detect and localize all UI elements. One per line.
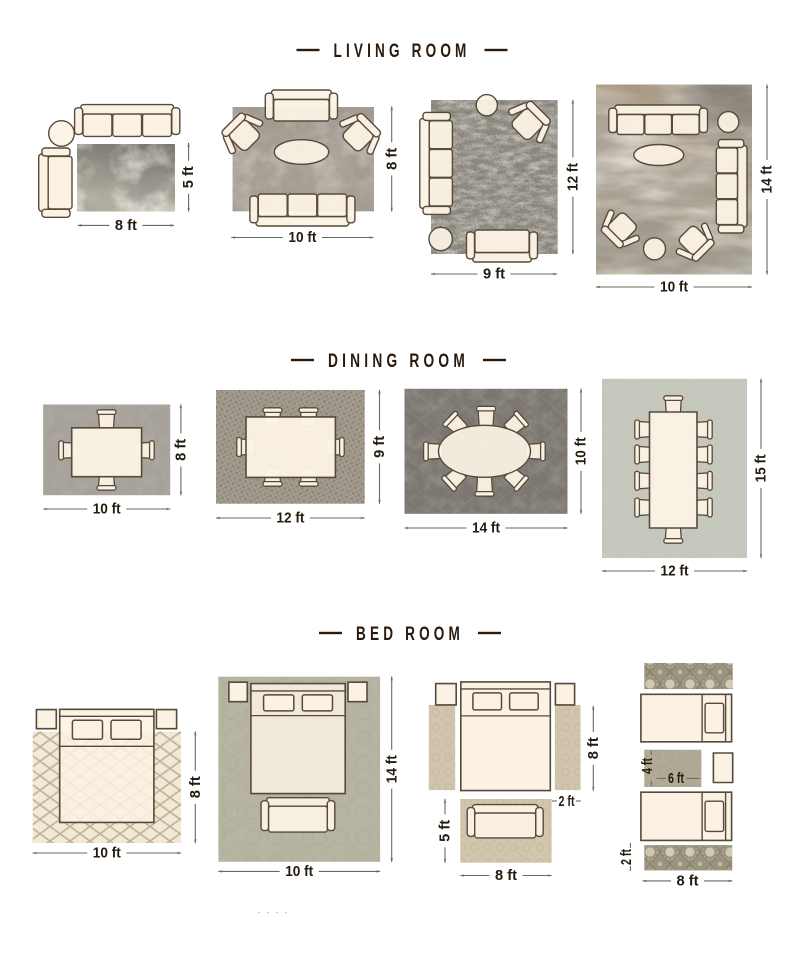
svg-text:2 ft: 2 ft — [559, 794, 575, 810]
svg-text:4 ft: 4 ft — [640, 758, 656, 774]
svg-text:12 ft: 12 ft — [566, 163, 582, 191]
svg-text:BED ROOM: BED ROOM — [356, 623, 464, 645]
svg-text:12 ft: 12 ft — [276, 511, 304, 527]
svg-text:8 ft: 8 ft — [677, 874, 699, 890]
svg-text:14 ft: 14 ft — [472, 521, 500, 537]
svg-text:8 ft: 8 ft — [495, 868, 517, 884]
svg-text:10 ft: 10 ft — [285, 864, 313, 880]
svg-text:15 ft: 15 ft — [754, 454, 770, 482]
svg-text:LIVING ROOM: LIVING ROOM — [334, 40, 471, 62]
svg-text:14 ft: 14 ft — [760, 165, 776, 193]
svg-text:5 ft: 5 ft — [438, 820, 454, 842]
svg-text:8 ft: 8 ft — [586, 737, 602, 759]
svg-text:8 ft: 8 ft — [174, 439, 190, 461]
svg-text:14 ft: 14 ft — [384, 755, 400, 783]
svg-text:5 ft: 5 ft — [181, 166, 197, 188]
svg-text:10 ft: 10 ft — [574, 437, 590, 465]
svg-text:10 ft: 10 ft — [660, 280, 688, 296]
svg-text:9 ft: 9 ft — [372, 436, 388, 458]
svg-text:12 ft: 12 ft — [661, 564, 689, 580]
svg-text:10 ft: 10 ft — [288, 230, 316, 246]
svg-text:9 ft: 9 ft — [483, 267, 505, 283]
svg-text:8 ft: 8 ft — [188, 776, 204, 798]
svg-text:2 ft: 2 ft — [619, 849, 635, 865]
svg-text:6 ft: 6 ft — [668, 771, 684, 787]
svg-text:8 ft: 8 ft — [384, 148, 400, 170]
svg-text:10 ft: 10 ft — [93, 502, 121, 518]
svg-text:10 ft: 10 ft — [93, 846, 121, 862]
svg-text:8 ft: 8 ft — [115, 218, 137, 234]
svg-text:DINING ROOM: DINING ROOM — [328, 350, 469, 372]
